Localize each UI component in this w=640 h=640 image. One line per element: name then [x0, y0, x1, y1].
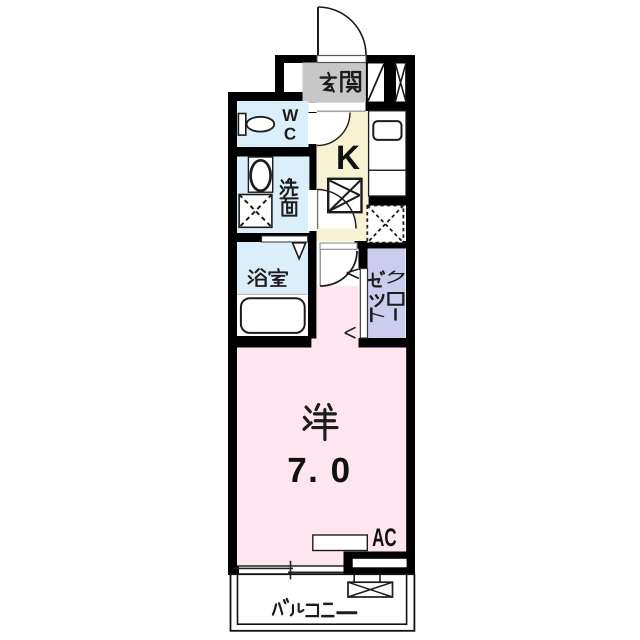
svg-text:0: 0 [331, 451, 350, 490]
svg-text:K: K [336, 139, 360, 177]
svg-text:C: C [284, 124, 296, 143]
svg-text:.: . [308, 451, 318, 490]
svg-text:AC: AC [372, 524, 397, 552]
svg-text:W: W [282, 106, 299, 125]
svg-text:7: 7 [287, 451, 306, 490]
